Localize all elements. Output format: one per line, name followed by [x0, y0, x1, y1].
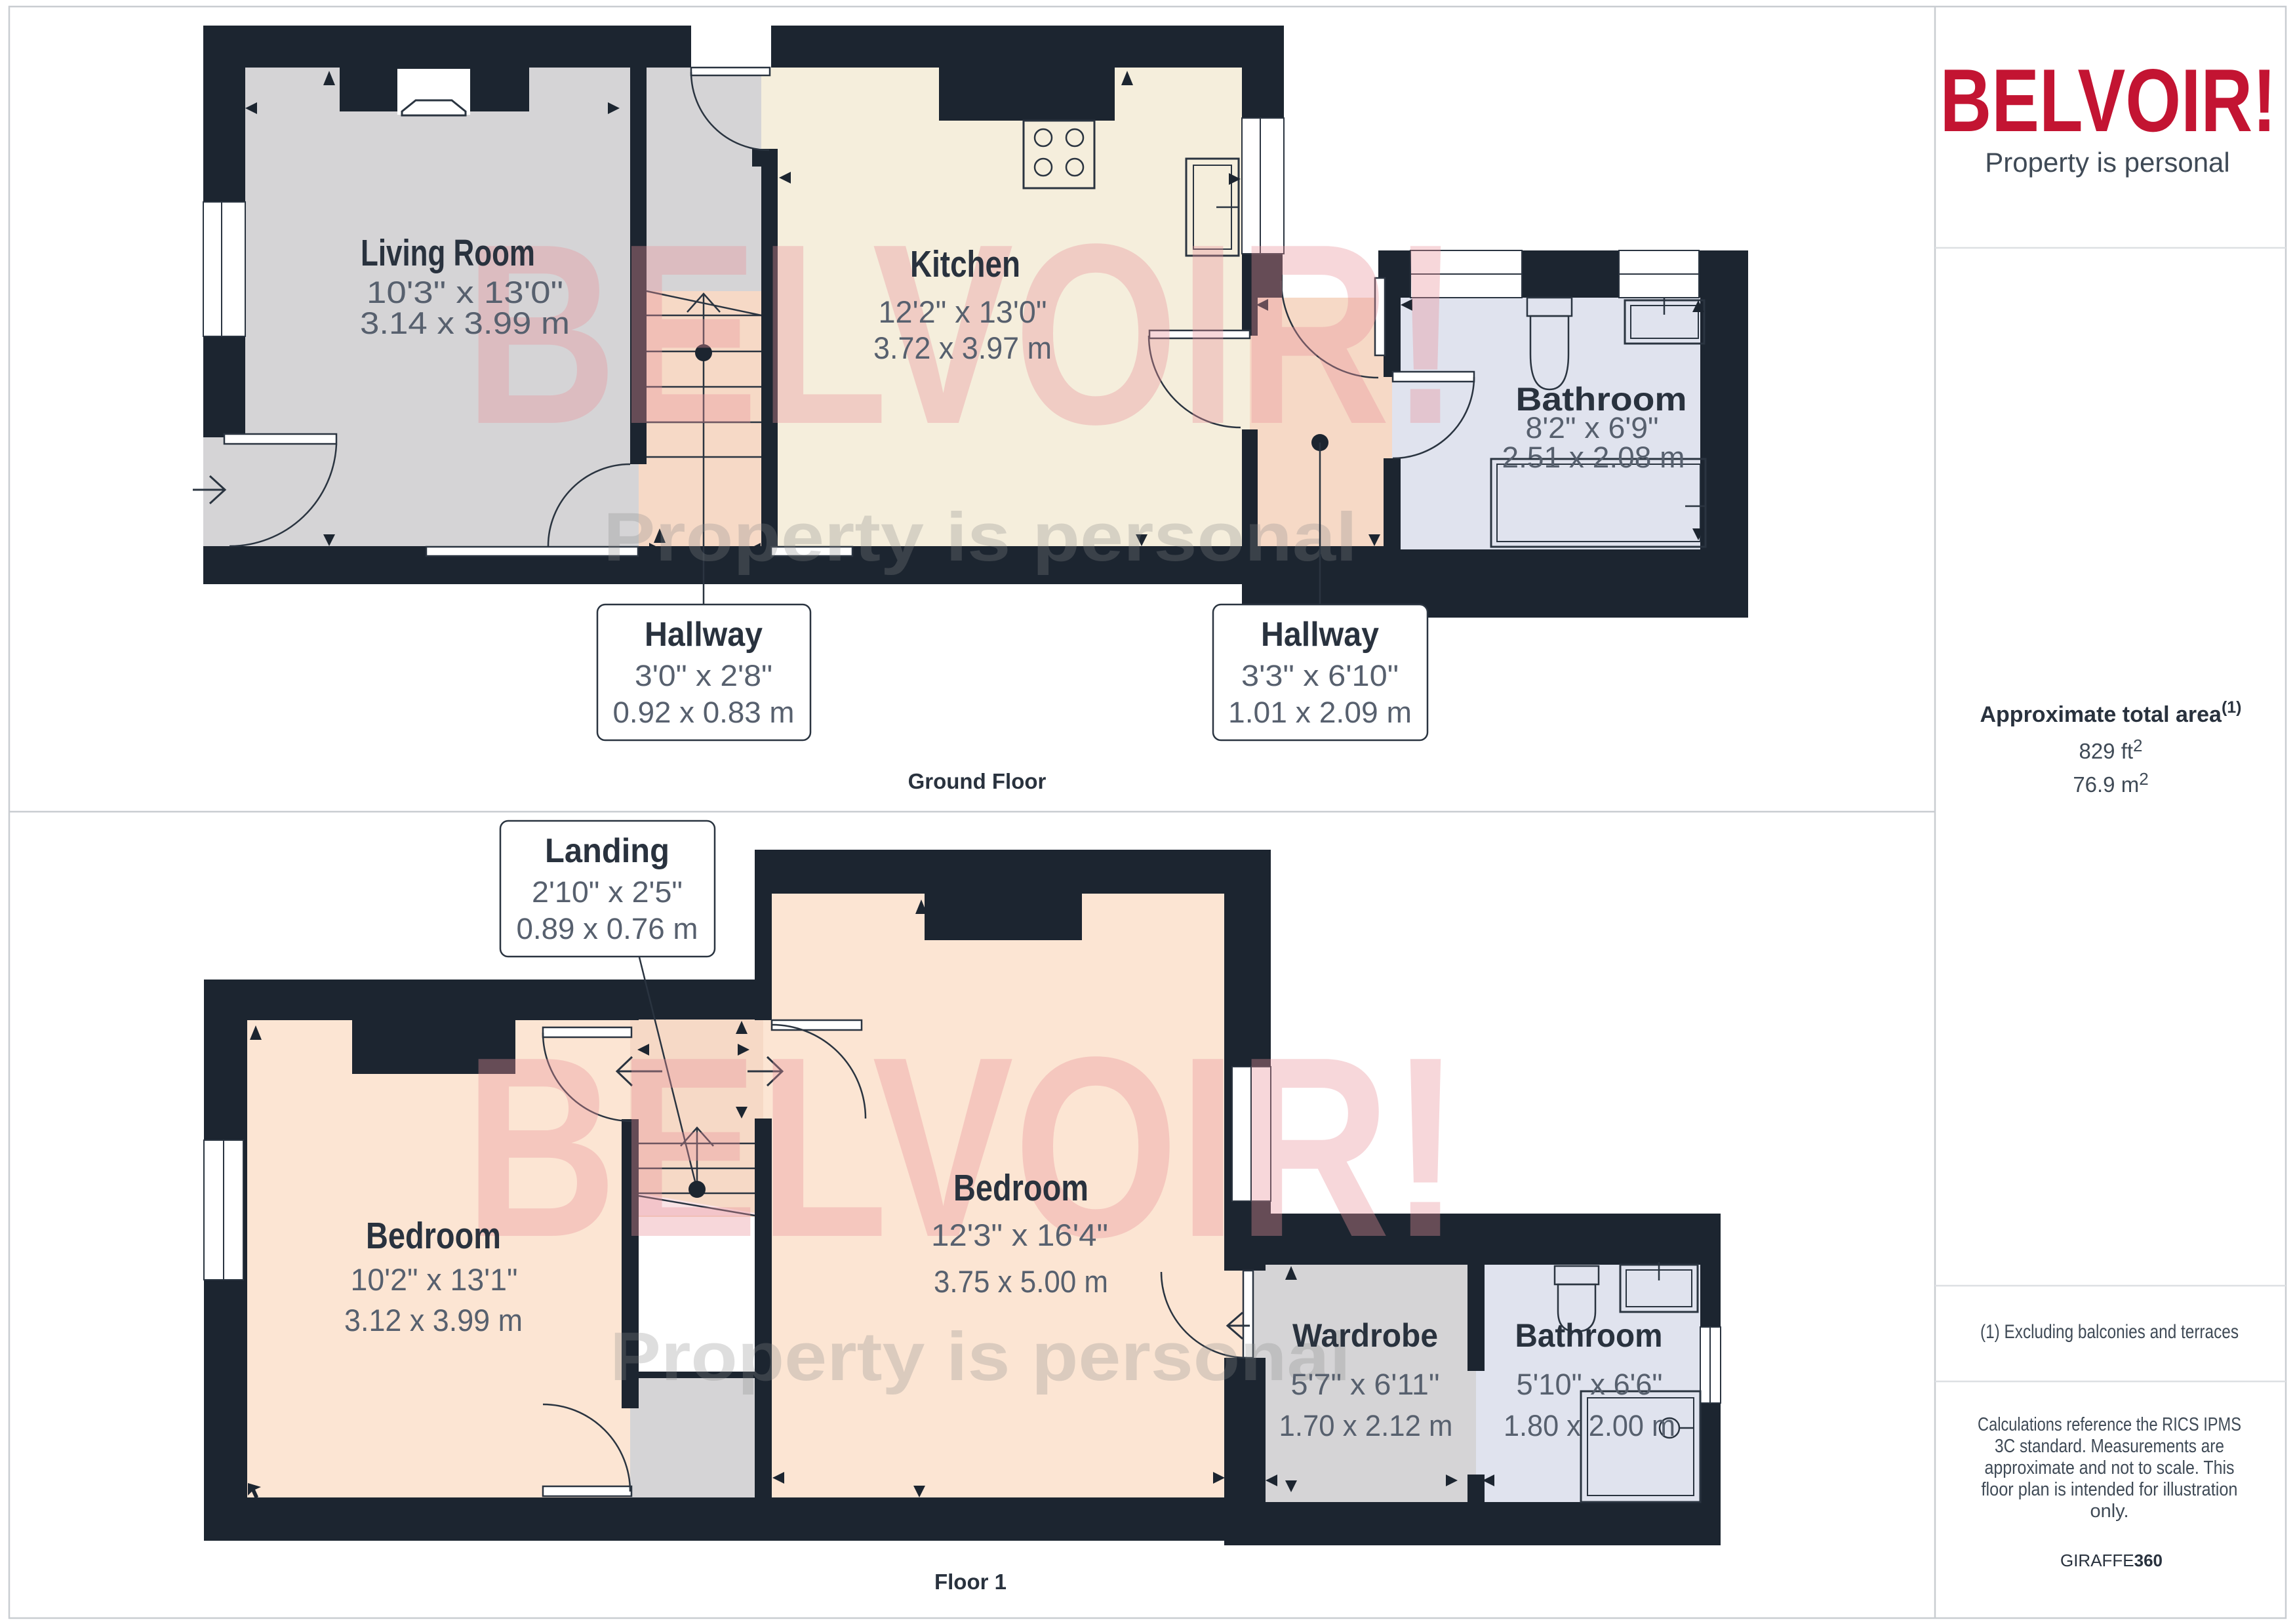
svg-text:12'3" x 16'4": 12'3" x 16'4": [931, 1218, 1108, 1252]
svg-text:Wardrobe: Wardrobe: [1292, 1317, 1438, 1354]
svg-text:12'2" x 13'0": 12'2" x 13'0": [879, 294, 1047, 329]
svg-text:approximate and not to scale.: approximate and not to scale. This: [1985, 1457, 2235, 1478]
svg-text:(1) Excluding balconies and te: (1) Excluding balconies and terraces: [1980, 1321, 2239, 1343]
svg-text:3'0" x 2'8": 3'0" x 2'8": [635, 659, 772, 692]
svg-text:Property is personal: Property is personal: [603, 499, 1357, 576]
svg-text:2.51 x 2.08 m: 2.51 x 2.08 m: [1502, 441, 1685, 474]
svg-text:5'10" x 6'6": 5'10" x 6'6": [1517, 1368, 1663, 1401]
svg-text:Ground Floor: Ground Floor: [908, 769, 1047, 793]
svg-text:3.72 x 3.97 m: 3.72 x 3.97 m: [873, 330, 1052, 365]
svg-text:3.12 x 3.99 m: 3.12 x 3.99 m: [344, 1303, 523, 1337]
svg-text:BELVOIR!: BELVOIR!: [1940, 50, 2277, 150]
svg-text:Bathroom: Bathroom: [1515, 1317, 1663, 1354]
svg-text:Calculations reference the RIC: Calculations reference the RICS IPMS: [1978, 1414, 2241, 1435]
svg-text:GIRAFFE360: GIRAFFE360: [2060, 1551, 2163, 1570]
svg-text:1.70 x 2.12 m: 1.70 x 2.12 m: [1279, 1409, 1453, 1442]
svg-text:5'7" x 6'11": 5'7" x 6'11": [1291, 1368, 1440, 1401]
svg-text:10'2" x 13'1": 10'2" x 13'1": [351, 1262, 518, 1297]
svg-text:3'3" x 6'10": 3'3" x 6'10": [1241, 659, 1399, 692]
svg-text:3.14 x 3.99 m: 3.14 x 3.99 m: [360, 306, 570, 340]
svg-text:0.92 x 0.83 m: 0.92 x 0.83 m: [613, 696, 795, 729]
svg-text:8'2" x 6'9": 8'2" x 6'9": [1526, 411, 1659, 445]
svg-text:only.: only.: [2090, 1501, 2128, 1522]
svg-text:76.9 m2: 76.9 m2: [2073, 769, 2148, 797]
svg-text:Approximate total area(1): Approximate total area(1): [1980, 698, 2241, 727]
svg-text:Property is personal: Property is personal: [1985, 147, 2230, 178]
svg-text:Floor 1: Floor 1: [934, 1570, 1007, 1594]
svg-text:Kitchen: Kitchen: [910, 243, 1020, 285]
svg-text:1.01 x 2.09 m: 1.01 x 2.09 m: [1228, 696, 1412, 729]
svg-text:10'3" x 13'0": 10'3" x 13'0": [367, 275, 563, 309]
svg-text:Landing: Landing: [545, 832, 669, 870]
svg-text:2'10" x 2'5": 2'10" x 2'5": [532, 875, 683, 909]
svg-text:Bedroom: Bedroom: [366, 1215, 501, 1257]
svg-text:1.80 x 2.00 m: 1.80 x 2.00 m: [1504, 1409, 1675, 1442]
svg-text:Living Room: Living Room: [361, 232, 535, 274]
svg-text:3C standard. Measurements are: 3C standard. Measurements are: [1995, 1436, 2224, 1457]
svg-text:floor plan is intended for ill: floor plan is intended for illustration: [1982, 1479, 2238, 1500]
svg-text:3.75 x 5.00 m: 3.75 x 5.00 m: [934, 1264, 1108, 1299]
svg-text:Property is personal: Property is personal: [610, 1318, 1351, 1395]
svg-text:0.89 x 0.76 m: 0.89 x 0.76 m: [517, 912, 698, 945]
svg-text:Hallway: Hallway: [645, 616, 763, 654]
svg-text:Bedroom: Bedroom: [953, 1167, 1088, 1209]
svg-text:Hallway: Hallway: [1261, 616, 1379, 654]
svg-text:829 ft2: 829 ft2: [2079, 736, 2142, 763]
